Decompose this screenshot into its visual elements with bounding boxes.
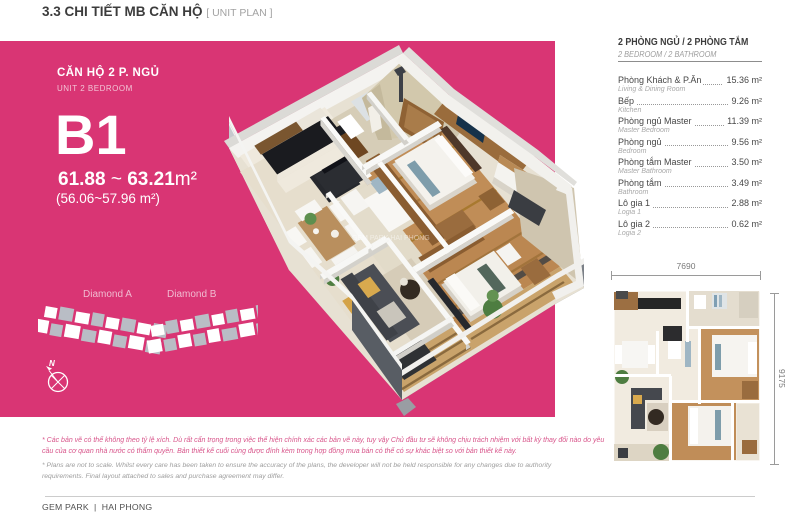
svg-text:GEM PARK HAI PHONG: GEM PARK HAI PHONG (352, 235, 430, 242)
svg-text:N: N (49, 359, 55, 368)
